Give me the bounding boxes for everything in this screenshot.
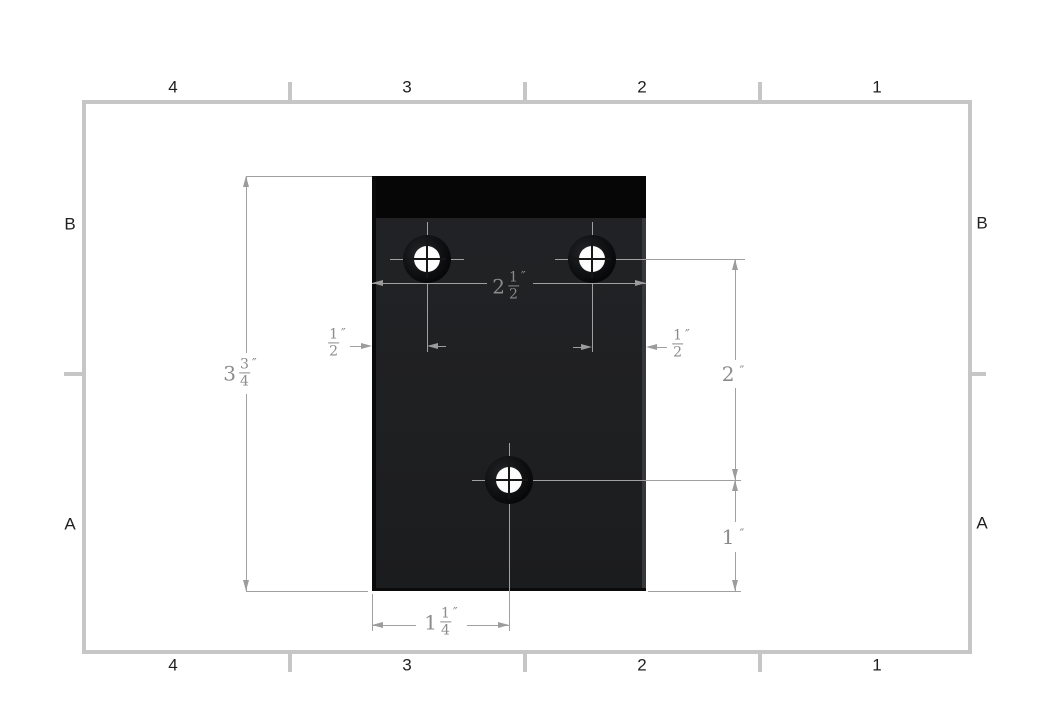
extension-line-top-left [246, 176, 372, 177]
dimension-whole: 3 [223, 363, 236, 383]
leader-tail-left-offset [438, 346, 446, 347]
arrowhead-icon [372, 280, 383, 286]
center-mark-icon [490, 479, 528, 481]
dimension-line-width-right [533, 283, 646, 284]
zone-label-left-b: B [64, 216, 75, 233]
arrowhead-icon [732, 259, 738, 270]
zone-label-top-3: 3 [402, 79, 411, 96]
dimension-label-hole-row-spacing: 2 ″ [722, 364, 745, 384]
zone-label-top-4: 4 [168, 79, 177, 96]
zone-label-right-b: B [976, 215, 987, 232]
dimension-fraction: 3 4 [239, 356, 250, 389]
arrowhead-icon [581, 344, 592, 350]
drawing-sheet: 4 3 2 1 4 3 2 1 B A B A [0, 0, 1063, 709]
dimension-label-left-hole-offset: 1 2 ″ [328, 326, 346, 359]
frame-tick [288, 82, 292, 100]
frame-tick [758, 654, 762, 672]
zone-label-right-a: A [976, 515, 987, 532]
arrowhead-icon [361, 343, 372, 349]
dimension-line-row-spacing-lower [735, 388, 736, 480]
unit-mark: ″ [453, 606, 458, 619]
dimension-fraction: 1 2 [508, 269, 519, 302]
dimension-fraction: 1 4 [440, 605, 451, 638]
arrowhead-icon [243, 176, 249, 187]
dimension-whole: 1 [722, 527, 735, 547]
dimension-fraction: 1 2 [328, 326, 339, 359]
zone-label-bottom-1: 1 [872, 657, 881, 674]
dimension-line-row-spacing-upper [735, 259, 736, 360]
frame-tick [523, 654, 527, 672]
dimension-line-height-lower [246, 394, 247, 591]
arrowhead-icon [372, 622, 383, 628]
leader-tail-right-offset [573, 347, 581, 348]
extension-line-bottom-left [246, 591, 368, 592]
arrowhead-icon [498, 622, 509, 628]
dimension-whole: 2 [492, 276, 505, 296]
dimension-line-height-upper [246, 176, 247, 353]
unit-mark: ″ [252, 357, 257, 370]
dimension-label-plate-height: 3 3 4 ″ [223, 356, 257, 389]
arrowhead-icon [732, 480, 738, 491]
arrowhead-icon [646, 344, 657, 350]
dimension-label-bottom-hole-height: 1 ″ [722, 527, 745, 547]
center-mark-icon [408, 258, 446, 260]
dimension-line-width-left [372, 283, 487, 284]
dimension-fraction: 1 2 [672, 327, 683, 360]
unit-mark: ″ [521, 270, 526, 283]
leader-line-right-offset [657, 347, 667, 348]
unit-mark: ″ [341, 327, 346, 340]
frame-tick [288, 654, 292, 672]
plate-right-edge [642, 218, 646, 591]
zone-label-top-1: 1 [872, 79, 881, 96]
frame-tick [968, 372, 986, 376]
arrowhead-icon [732, 469, 738, 480]
dimension-whole: 2 [722, 364, 735, 384]
plate-left-edge [372, 176, 376, 591]
dimension-label-bottom-hole-offset: 1 1 4 ″ [424, 605, 458, 638]
arrowhead-icon [427, 343, 438, 349]
bracket-top-flange [372, 176, 646, 218]
arrowhead-icon [732, 580, 738, 591]
zone-label-left-a: A [64, 516, 75, 533]
unit-mark: ″ [739, 528, 744, 541]
zone-label-bottom-2: 2 [637, 657, 646, 674]
dimension-label-plate-width: 2 1 2 ″ [492, 269, 526, 302]
arrowhead-icon [635, 280, 646, 286]
frame-tick [523, 82, 527, 100]
center-mark-icon [573, 258, 611, 260]
zone-label-bottom-4: 4 [168, 657, 177, 674]
unit-mark: ″ [739, 365, 744, 378]
unit-mark: ″ [685, 328, 690, 341]
extension-line-bottom-right [648, 591, 741, 592]
frame-tick [64, 372, 82, 376]
zone-label-bottom-3: 3 [402, 657, 411, 674]
zone-label-top-2: 2 [637, 79, 646, 96]
dimension-label-right-hole-offset: 1 2 ″ [672, 327, 690, 360]
frame-tick [758, 82, 762, 100]
dimension-whole: 1 [424, 612, 437, 632]
arrowhead-icon [243, 580, 249, 591]
